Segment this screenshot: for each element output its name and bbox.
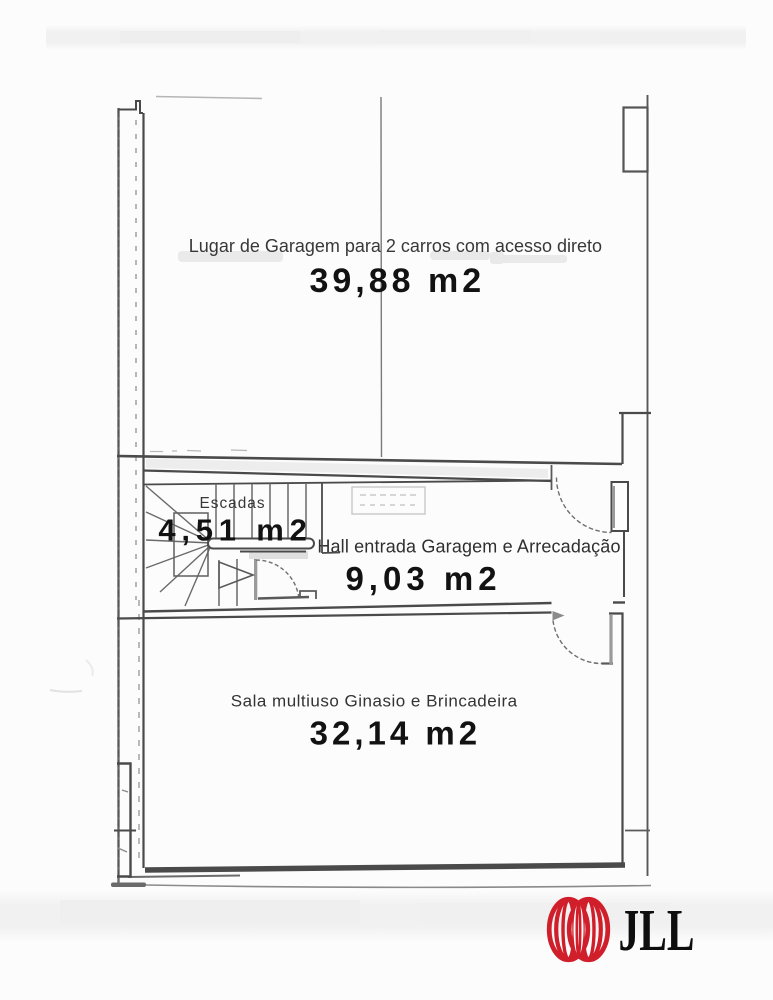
- svg-text:39,88 m2: 39,88 m2: [309, 262, 485, 300]
- svg-text:Hall entrada Garagem e Arrecad: Hall entrada Garagem e Arrecadação: [317, 537, 620, 557]
- svg-text:Sala multiuso Ginasio e Brinca: Sala multiuso Ginasio e Brincadeira: [231, 692, 518, 711]
- svg-text:9,03 m2: 9,03 m2: [345, 560, 501, 597]
- svg-text:JLL: JLL: [619, 897, 695, 963]
- svg-text:4,51 m2: 4,51 m2: [158, 513, 312, 548]
- svg-text:Lugar de Garagem para 2 carros: Lugar de Garagem para 2 carros com acess…: [189, 236, 602, 256]
- svg-text:Escadas: Escadas: [199, 495, 265, 512]
- svg-text:32,14 m2: 32,14 m2: [310, 715, 481, 752]
